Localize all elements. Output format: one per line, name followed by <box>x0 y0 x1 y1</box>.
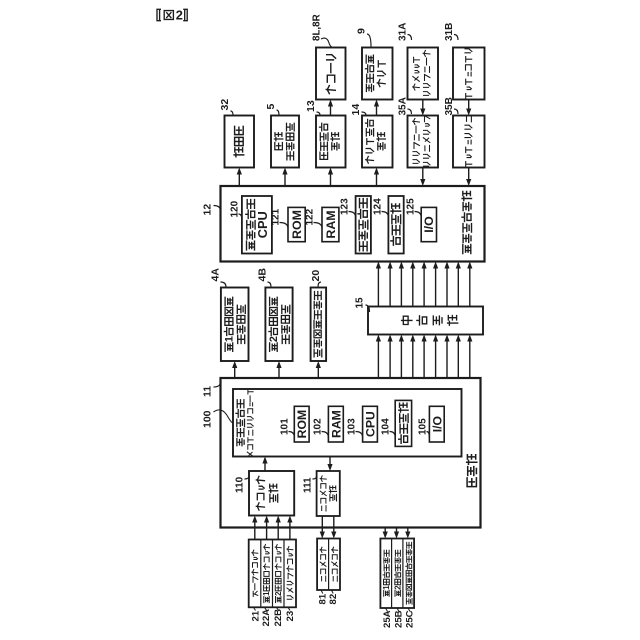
svg-text:5: 5 <box>265 104 277 110</box>
svg-text:1: 1 <box>224 336 236 342</box>
svg-text:25C: 25C <box>405 610 416 628</box>
svg-text:123: 123 <box>339 198 350 215</box>
svg-text:4A: 4A <box>210 268 222 282</box>
svg-text:CPU: CPU <box>255 211 270 238</box>
svg-text:31A: 31A <box>397 23 408 41</box>
svg-text:2: 2 <box>268 336 280 342</box>
svg-text:102: 102 <box>312 418 323 435</box>
svg-text:11: 11 <box>202 386 214 397</box>
svg-text:12: 12 <box>202 204 214 216</box>
svg-text:103: 103 <box>346 418 357 435</box>
svg-text:RAM: RAM <box>324 210 338 238</box>
svg-text:120: 120 <box>229 200 240 217</box>
svg-text:9: 9 <box>356 28 368 34</box>
svg-text:15: 15 <box>354 297 365 309</box>
svg-text:1: 1 <box>262 591 271 596</box>
svg-text:111: 111 <box>302 477 313 493</box>
svg-text:31B: 31B <box>444 23 455 41</box>
svg-text:81: 81 <box>318 593 329 604</box>
svg-text:32: 32 <box>219 99 231 111</box>
svg-text:25B: 25B <box>394 610 405 628</box>
svg-text:104: 104 <box>380 418 391 435</box>
svg-text:13: 13 <box>305 100 317 112</box>
svg-text:ROM: ROM <box>290 210 304 239</box>
svg-text:I/O: I/O <box>422 216 436 233</box>
svg-text:1: 1 <box>382 585 391 590</box>
svg-text:124: 124 <box>372 198 383 215</box>
svg-text:I/O: I/O <box>430 416 444 432</box>
svg-text:CPU: CPU <box>364 411 378 437</box>
svg-text:RAM: RAM <box>329 410 343 438</box>
svg-text:ROM: ROM <box>295 410 309 438</box>
svg-text:20: 20 <box>310 270 322 282</box>
svg-text:22A: 22A <box>261 609 272 627</box>
svg-text:2: 2 <box>393 585 402 590</box>
svg-text:110: 110 <box>234 476 245 493</box>
svg-text:100: 100 <box>202 410 214 428</box>
svg-text:23: 23 <box>285 611 296 622</box>
svg-text:21: 21 <box>250 610 261 621</box>
svg-text:14: 14 <box>350 104 362 116</box>
svg-text:8L,8R: 8L,8R <box>312 14 323 41</box>
svg-text:82: 82 <box>328 594 339 605</box>
svg-text:25A: 25A <box>382 610 393 628</box>
svg-text:22B: 22B <box>273 609 284 627</box>
svg-text:125: 125 <box>405 198 416 215</box>
svg-text:4B: 4B <box>257 268 269 282</box>
svg-text:2: 2 <box>176 8 183 23</box>
svg-text:105: 105 <box>417 418 428 435</box>
svg-text:2: 2 <box>274 591 283 596</box>
svg-text:101: 101 <box>279 418 290 435</box>
